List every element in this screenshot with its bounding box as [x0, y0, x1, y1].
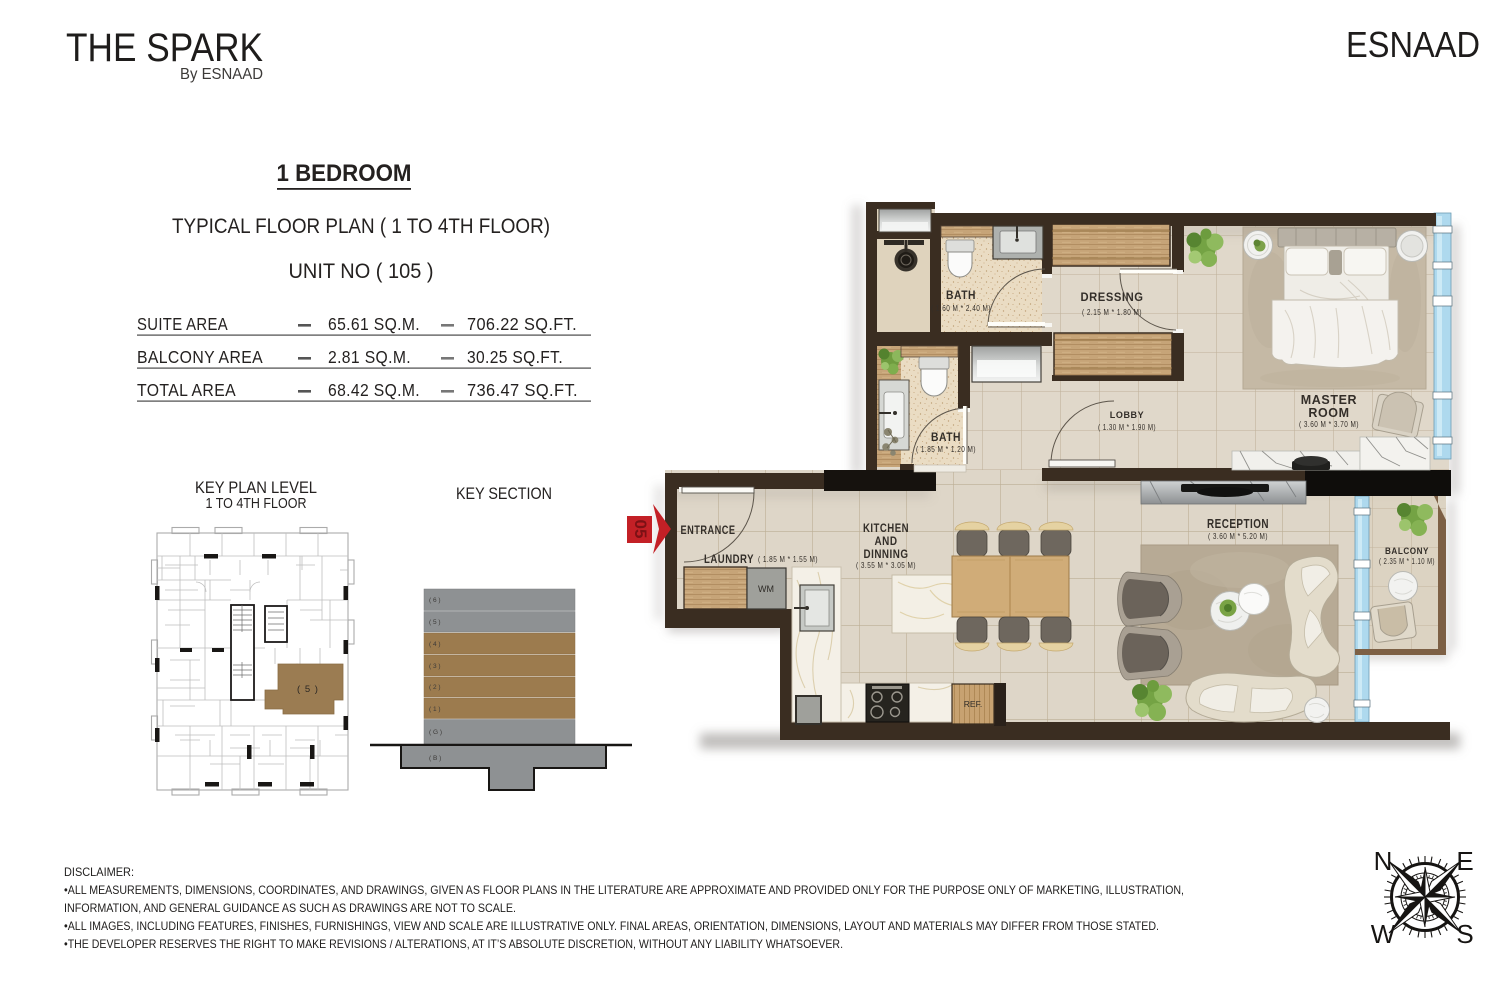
- svg-text:( 1.85 M * 1.20 M): ( 1.85 M * 1.20 M): [916, 445, 976, 454]
- svg-text:( 2.35 M * 1.10 M): ( 2.35 M * 1.10 M): [1379, 557, 1435, 566]
- svg-text:AND: AND: [875, 534, 898, 548]
- svg-text:KEY PLAN LEVEL: KEY PLAN LEVEL: [195, 479, 317, 497]
- svg-text:SUITE AREA: SUITE AREA: [137, 314, 228, 334]
- svg-text:BATH: BATH: [946, 288, 976, 302]
- svg-text:KITCHEN: KITCHEN: [863, 521, 909, 535]
- svg-text:LOBBY: LOBBY: [1110, 410, 1145, 420]
- svg-text:DISCLAIMER:: DISCLAIMER:: [64, 865, 134, 879]
- svg-text:W: W: [1371, 919, 1396, 949]
- svg-text:LAUNDRY: LAUNDRY: [704, 554, 754, 566]
- svg-text:ROOM: ROOM: [1308, 406, 1349, 420]
- svg-text:( 1.30 M * 1.90 M): ( 1.30 M * 1.90 M): [1098, 423, 1156, 432]
- svg-text:( 6 ): ( 6 ): [429, 597, 441, 604]
- svg-text:DINNING: DINNING: [864, 547, 909, 561]
- svg-text:( 1.85 M * 1.55 M): ( 1.85 M * 1.55 M): [758, 554, 818, 564]
- svg-text:( 5 ): ( 5 ): [297, 684, 319, 695]
- svg-text:05: 05: [631, 520, 650, 539]
- svg-text:BALCONY: BALCONY: [1385, 546, 1429, 556]
- svg-text:INFORMATION, AND GENERAL GUIDA: INFORMATION, AND GENERAL GUIDANCE AS SUC…: [64, 901, 516, 915]
- svg-text:( 5 ): ( 5 ): [429, 619, 441, 626]
- svg-text:68.42 SQ.M.: 68.42 SQ.M.: [328, 380, 420, 400]
- svg-text:( 4 ): ( 4 ): [429, 641, 441, 648]
- svg-text:UNIT NO ( 105 ): UNIT NO ( 105 ): [289, 259, 434, 283]
- svg-text:THE SPARK: THE SPARK: [66, 26, 263, 70]
- svg-text:DRESSING: DRESSING: [1081, 290, 1144, 304]
- svg-text:ENTRANCE: ENTRANCE: [681, 525, 736, 537]
- svg-text:( 3 ): ( 3 ): [429, 663, 441, 670]
- svg-text:MASTER: MASTER: [1301, 393, 1357, 407]
- svg-text:•ALL MEASUREMENTS, DIMENSIONS,: •ALL MEASUREMENTS, DIMENSIONS, COORDINAT…: [64, 883, 1184, 897]
- svg-text:( 2 ): ( 2 ): [429, 684, 441, 691]
- svg-text:N: N: [1374, 846, 1393, 876]
- svg-text:KEY SECTION: KEY SECTION: [456, 485, 552, 503]
- svg-text:2.81 SQ.M.: 2.81 SQ.M.: [328, 347, 411, 367]
- svg-text:By ESNAAD: By ESNAAD: [180, 66, 263, 83]
- svg-text:•THE DEVELOPER RESERVES THE RI: •THE DEVELOPER RESERVES THE RIGHT TO MAK…: [64, 937, 843, 951]
- svg-text:( 1.60 M * 2.40 M): ( 1.60 M * 2.40 M): [931, 304, 991, 313]
- svg-text:TYPICAL FLOOR PLAN ( 1 TO 4TH: TYPICAL FLOOR PLAN ( 1 TO 4TH FLOOR): [172, 214, 550, 238]
- svg-text:( G ): ( G ): [429, 729, 442, 736]
- svg-text:( B ): ( B ): [429, 755, 441, 762]
- svg-text:REF.: REF.: [964, 699, 982, 709]
- svg-text:( 3.55 M * 3.05 M): ( 3.55 M * 3.05 M): [856, 561, 916, 570]
- svg-text:TOTAL AREA: TOTAL AREA: [137, 380, 236, 400]
- svg-text:65.61 SQ.M.: 65.61 SQ.M.: [328, 314, 420, 334]
- svg-text:1 BEDROOM: 1 BEDROOM: [277, 160, 412, 187]
- svg-text:WM: WM: [758, 584, 774, 594]
- svg-text:RECEPTION: RECEPTION: [1207, 517, 1269, 531]
- svg-text:736.47 SQ.FT.: 736.47 SQ.FT.: [467, 380, 578, 400]
- svg-text:•ALL IMAGES, INCLUDING FEATURE: •ALL IMAGES, INCLUDING FEATURES, FINISHE…: [64, 919, 1159, 933]
- svg-text:706.22 SQ.FT.: 706.22 SQ.FT.: [467, 314, 577, 334]
- svg-text:( 2.15 M * 1.80 M): ( 2.15 M * 1.80 M): [1082, 308, 1142, 317]
- svg-text:( 3.60 M * 5.20 M): ( 3.60 M * 5.20 M): [1208, 532, 1268, 541]
- svg-text:1 TO 4TH FLOOR: 1 TO 4TH FLOOR: [206, 496, 307, 512]
- svg-text:( 3.60 M * 3.70 M): ( 3.60 M * 3.70 M): [1299, 420, 1359, 429]
- svg-text:BATH: BATH: [931, 430, 961, 444]
- svg-text:( 1 ): ( 1 ): [429, 706, 441, 713]
- svg-text:30.25 SQ.FT.: 30.25 SQ.FT.: [467, 347, 563, 367]
- svg-text:E: E: [1456, 846, 1473, 876]
- svg-text:ESNAAD: ESNAAD: [1346, 24, 1480, 65]
- svg-text:BALCONY AREA: BALCONY AREA: [137, 347, 263, 367]
- svg-text:S: S: [1456, 919, 1473, 949]
